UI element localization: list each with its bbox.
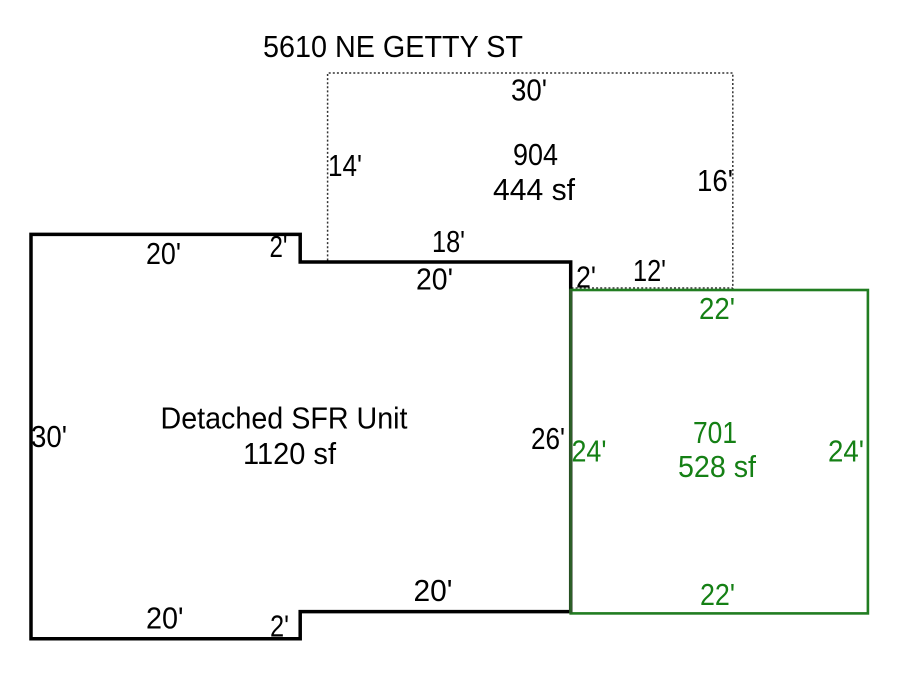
svg-text:2': 2'	[270, 609, 289, 644]
svg-text:24': 24'	[572, 434, 607, 469]
svg-text:14': 14'	[328, 148, 362, 183]
svg-text:20': 20'	[416, 262, 453, 297]
svg-text:24': 24'	[828, 434, 864, 469]
svg-text:2': 2'	[270, 229, 288, 264]
svg-text:12': 12'	[633, 253, 666, 288]
svg-text:904: 904	[513, 137, 558, 172]
svg-text:30': 30'	[511, 73, 547, 108]
svg-text:30': 30'	[31, 419, 67, 454]
svg-text:2': 2'	[576, 260, 596, 295]
svg-text:18': 18'	[432, 224, 465, 259]
svg-text:701: 701	[693, 415, 737, 450]
svg-text:20': 20'	[146, 601, 184, 636]
svg-text:20': 20'	[414, 573, 453, 608]
svg-text:528 sf: 528 sf	[678, 449, 756, 484]
svg-text:22': 22'	[699, 291, 735, 326]
svg-text:1120 sf: 1120 sf	[243, 436, 336, 471]
svg-text:20': 20'	[146, 236, 181, 271]
svg-text:Detached SFR Unit: Detached SFR Unit	[161, 401, 408, 436]
svg-text:5610 NE GETTY ST: 5610 NE GETTY ST	[263, 29, 523, 64]
svg-text:22': 22'	[700, 577, 735, 612]
svg-text:26': 26'	[531, 421, 565, 456]
svg-text:16': 16'	[697, 163, 733, 198]
svg-text:444 sf: 444 sf	[493, 172, 575, 207]
